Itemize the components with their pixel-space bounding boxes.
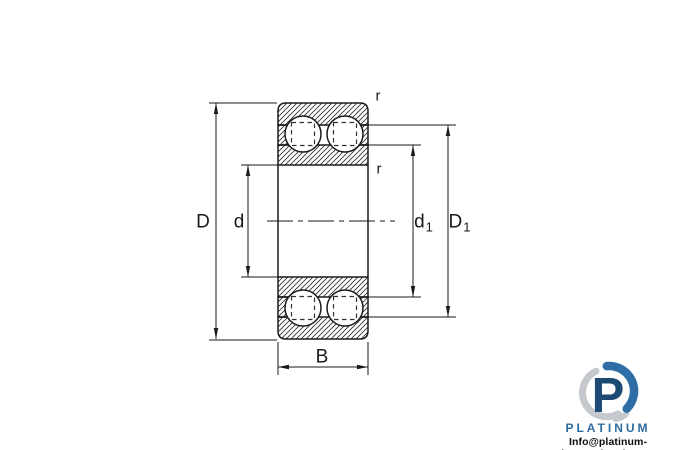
label-bore-diameter-d: d [234, 213, 245, 232]
ball-icon [327, 116, 363, 152]
label-d1-base: d [414, 212, 425, 233]
ball-icon [285, 116, 321, 152]
bearing-drawing-page: D d d1 D1 B r r P PLATINUM Info@platinum… [0, 0, 675, 450]
contact-email-text: Info@platinum-international.store [538, 436, 675, 450]
ball-icon [285, 290, 321, 326]
label-chamfer-r-outer: r [376, 89, 381, 104]
brand-name-text: PLATINUM [538, 421, 675, 435]
label-D1-subscript: 1 [463, 220, 470, 235]
label-outer-shoulder-D1: D1 [449, 213, 470, 232]
platinum-watermark: P PLATINUM Info@platinum-international.s… [538, 361, 675, 450]
label-d1-subscript: 1 [426, 220, 433, 235]
label-width-B: B [316, 348, 329, 367]
label-chamfer-r-inner: r [377, 162, 382, 177]
logo-monogram-p: P [592, 369, 625, 423]
ball-icon [327, 290, 363, 326]
label-inner-shoulder-d1: d1 [414, 213, 432, 232]
label-outer-diameter-D: D [196, 213, 210, 232]
platinum-logo-icon: P [573, 361, 643, 423]
label-D1-base: D [449, 212, 463, 233]
